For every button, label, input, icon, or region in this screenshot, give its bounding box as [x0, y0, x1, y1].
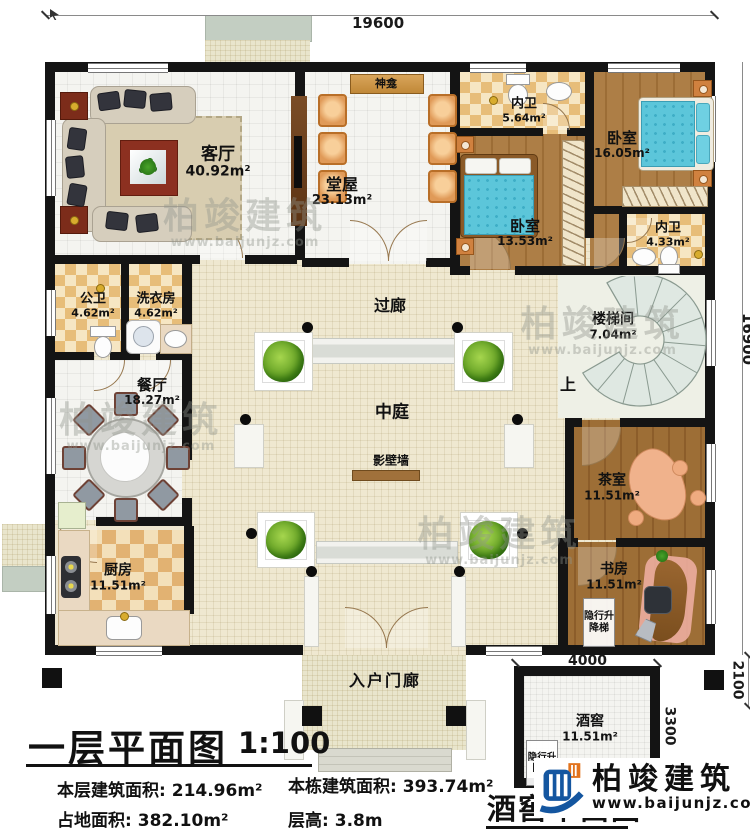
hall-chair — [428, 94, 457, 127]
fridge-icon — [58, 502, 86, 529]
wall — [96, 517, 192, 526]
dining-table-top — [100, 432, 150, 482]
window — [706, 444, 716, 502]
tree-icon — [263, 341, 304, 382]
sofa-cushion — [135, 213, 159, 234]
window — [46, 120, 56, 196]
window — [470, 63, 526, 73]
title-underline — [26, 764, 312, 767]
bed-pillow — [499, 158, 531, 174]
tv-icon — [294, 136, 302, 188]
sink-icon — [164, 330, 187, 348]
window — [46, 556, 56, 614]
stat-building-area: 本栋建筑面积: 393.74m² — [288, 772, 494, 797]
shrine-label: 神龛 — [375, 78, 397, 90]
sofa-cushion — [67, 127, 88, 151]
tea-cushion — [672, 460, 688, 476]
planter-box — [454, 332, 513, 391]
bed-pillow — [696, 103, 710, 132]
plan-scale: 1:100 — [238, 726, 330, 760]
sofa-cushion — [149, 92, 172, 112]
screen-wall-bar — [352, 470, 420, 481]
wall — [54, 255, 200, 264]
room-label-public-bath: 公卫4.62m² — [71, 293, 114, 320]
column-dot — [306, 566, 317, 577]
wardrobe — [622, 186, 708, 207]
walkway-pier — [234, 424, 264, 468]
room-label-ensuite2: 内卫4.33m² — [646, 222, 689, 249]
dimension-right: 16900 — [739, 313, 750, 365]
stat-floor-area: 本层建筑面积: 214.96m² — [57, 776, 263, 801]
brand-logo-icon — [538, 760, 584, 816]
dimension-line — [748, 656, 749, 708]
nightstand — [456, 136, 474, 153]
lamp-icon — [70, 102, 79, 111]
tree-icon — [266, 521, 306, 559]
wall — [184, 526, 194, 614]
window — [96, 646, 162, 656]
room-label-kitchen: 厨房11.51m² — [90, 563, 146, 592]
sink-icon — [546, 82, 572, 101]
tea-cushion — [628, 510, 644, 526]
toilet-icon — [658, 264, 680, 274]
label-up: 上 — [560, 376, 576, 394]
sofa-cushion — [66, 183, 88, 208]
room-label-ensuite1: 内卫5.64m² — [502, 98, 545, 125]
wall — [620, 418, 706, 427]
planter-box — [254, 332, 313, 391]
wall — [565, 418, 574, 544]
nightstand — [693, 80, 712, 97]
sofa-cushion — [65, 155, 85, 179]
cellar-marker-square — [704, 670, 724, 690]
room-label-dining: 餐厅18.27m² — [124, 377, 180, 407]
dining-chair — [166, 446, 190, 470]
wall — [585, 62, 594, 238]
dimension-top: 19600 — [352, 14, 404, 32]
elevator-label: 隐行升降梯 — [583, 598, 615, 647]
column-dot — [452, 322, 463, 333]
walkway-pier — [304, 576, 319, 647]
walkway-pier — [504, 424, 534, 468]
room-label-porch: 入户门廊 — [349, 672, 421, 690]
sofa-cushion — [105, 211, 129, 232]
spiral-stair — [558, 276, 708, 416]
porch-pillar — [302, 706, 322, 726]
plant-icon — [656, 550, 668, 562]
dimension-cellar-depth: 3300 — [661, 707, 677, 746]
lamp-icon — [70, 216, 79, 225]
cellar-marker-square — [42, 668, 62, 688]
room-label-living: 客厅40.92m² — [185, 146, 250, 181]
planter-box — [257, 512, 315, 568]
column-dot — [454, 566, 465, 577]
hall-chair — [428, 132, 457, 165]
lamp-icon — [694, 250, 703, 259]
room-label-bedroom2: 卧室13.53m² — [497, 218, 553, 248]
column-dot — [302, 322, 313, 333]
dining-chair — [114, 498, 138, 522]
stat-land-area: 占地面积: 382.10m² — [57, 806, 229, 831]
faucet-icon — [120, 612, 129, 621]
floor-plan-page: 19600 16900 — [0, 0, 750, 840]
dining-chair — [62, 446, 86, 470]
burner-icon — [65, 580, 77, 592]
brand-logo: 柏竣建筑 www.baijunjz.com — [534, 758, 750, 818]
sink-icon — [632, 248, 656, 266]
column-dot — [517, 528, 528, 539]
porch-side-pier — [466, 700, 486, 760]
window — [486, 646, 542, 656]
walkway-pier — [451, 576, 466, 647]
washing-machine-drum — [133, 326, 154, 347]
room-label-stairwell: 楼梯间7.04m² — [589, 312, 636, 341]
window — [46, 398, 56, 474]
dimension-cellar-offset: 2100 — [729, 661, 745, 700]
tree-icon — [463, 341, 504, 382]
wall — [302, 258, 349, 267]
column-dot — [240, 414, 251, 425]
wall — [616, 538, 706, 547]
room-label-laundry: 洗衣房4.62m² — [134, 293, 177, 320]
wall — [558, 538, 568, 645]
nightstand — [693, 170, 712, 187]
room-label-atrium: 中庭 — [375, 403, 409, 422]
nightstand — [456, 238, 474, 255]
desk-chair — [644, 586, 672, 614]
bed-pillow — [465, 158, 497, 174]
walkway-beam-top — [312, 338, 456, 364]
wardrobe — [562, 140, 585, 266]
column-dot — [512, 414, 523, 425]
walkway-beam-bottom — [316, 541, 458, 564]
wall — [245, 255, 297, 264]
room-label-corridor: 过廊 — [374, 297, 406, 315]
planter-box — [460, 512, 518, 568]
column-dot — [246, 528, 257, 539]
window — [608, 63, 680, 73]
window — [46, 290, 56, 336]
wall — [459, 128, 543, 136]
hall-chair — [318, 94, 347, 127]
wall — [594, 206, 706, 214]
cursor-mark — [50, 9, 59, 20]
room-label-cellar: 酒窖11.51m² — [562, 714, 618, 743]
cellar-title-underline — [486, 826, 628, 829]
top-porch-landing — [205, 15, 312, 42]
tree-icon — [469, 521, 509, 559]
wall — [54, 352, 94, 360]
porch-pillar — [446, 706, 466, 726]
burner-icon — [65, 561, 77, 573]
room-label-study: 书房11.51m² — [586, 562, 642, 591]
porch-steps — [318, 748, 452, 772]
sofa-cushion — [123, 89, 147, 109]
bed-pillow — [696, 135, 710, 164]
hall-chair — [318, 132, 347, 165]
sofa-cushion — [97, 91, 121, 112]
dimension-cellar-width: 4000 — [568, 653, 607, 669]
window — [88, 63, 168, 73]
wall — [450, 266, 470, 275]
brand-name: 柏竣建筑 — [592, 765, 750, 795]
room-label-tea: 茶室11.51m² — [584, 473, 640, 502]
room-label-bedroom1: 卧室16.05m² — [594, 130, 650, 160]
toilet-icon — [94, 336, 112, 358]
stat-floor-height: 层高: 3.8m — [288, 806, 383, 831]
room-label-hall: 堂屋23.13m² — [312, 176, 372, 208]
dimension-tick — [744, 702, 750, 711]
dimension-tick — [744, 651, 750, 660]
plant-icon — [140, 159, 156, 175]
hall-chair — [428, 170, 457, 203]
wall — [45, 645, 303, 655]
brand-url: www.baijunjz.com — [592, 795, 750, 812]
window — [706, 570, 716, 624]
wall — [182, 264, 192, 460]
lamp-icon — [489, 96, 498, 105]
label-screen-wall: 影壁墙 — [373, 454, 409, 467]
tea-cushion — [690, 490, 706, 506]
